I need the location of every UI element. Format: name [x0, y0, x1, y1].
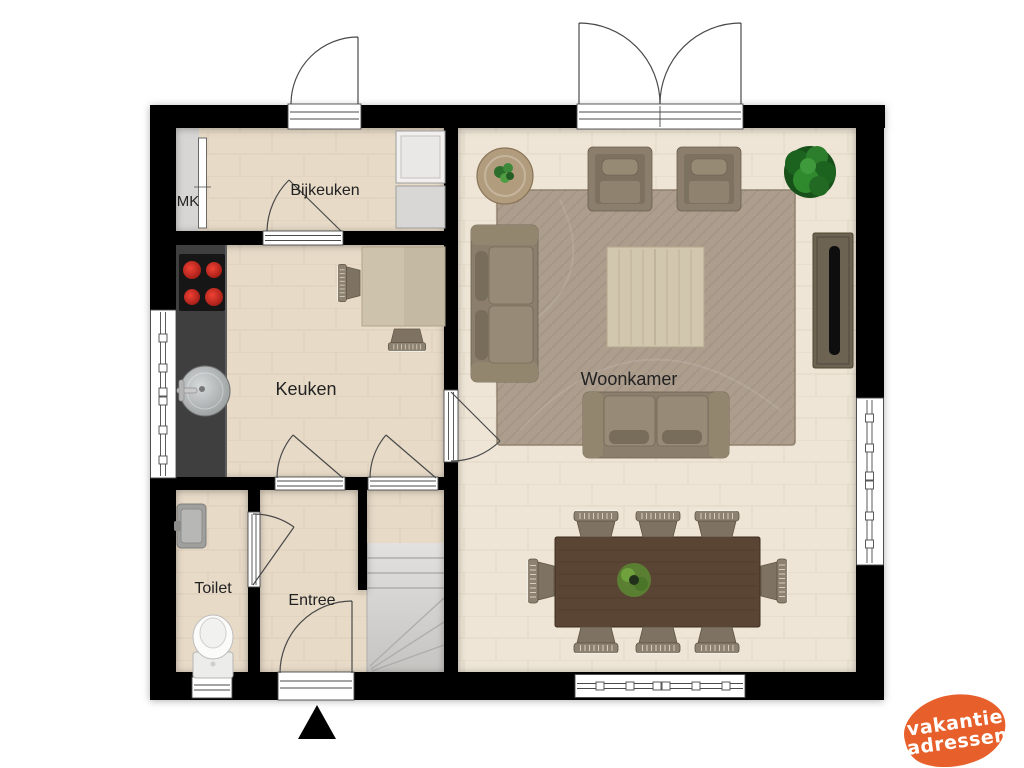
room-label-woonkamer: Woonkamer [581, 369, 678, 389]
door-woonkamer-double-exterior [577, 104, 743, 129]
room-label-toilet: Toilet [194, 580, 232, 597]
door-bijkeuken-exterior [288, 104, 361, 129]
window-woonkamer-right [857, 398, 884, 565]
dining-chair [574, 511, 618, 538]
armchair [677, 147, 741, 211]
window-toilet-bottom [192, 677, 232, 698]
floor-plan-canvas: MK Bijkeuken Keuken Woonkamer Toilet Ent… [0, 0, 1024, 768]
room-floor-mk [176, 128, 199, 231]
coffee-table [607, 247, 704, 347]
wall-entree-stairs [358, 483, 367, 590]
north-arrow-icon [298, 705, 336, 739]
wall-top [150, 105, 885, 128]
door-entree-keuken-left [275, 477, 345, 490]
side-table-round [477, 148, 533, 204]
window-dining-bottom [575, 675, 745, 698]
door-bijkeuken-keuken [263, 231, 343, 245]
room-label-mk: MK [177, 193, 200, 210]
armchair [588, 147, 652, 211]
room-label-entree: Entree [288, 592, 335, 609]
room-label-bijkeuken: Bijkeuken [290, 182, 359, 199]
washing-machine [396, 131, 445, 183]
dining-chair [761, 559, 788, 603]
kitchen-chair [338, 264, 361, 301]
toilet-fixture [193, 615, 233, 678]
window-keuken-left [151, 310, 177, 478]
kitchen-chair [388, 329, 425, 352]
room-label-keuken: Keuken [275, 379, 336, 399]
sofa-left [471, 225, 538, 382]
table-centerpiece-plant [617, 563, 651, 597]
stairs [367, 543, 444, 672]
door-entree-keuken-right [368, 477, 438, 490]
dining-chair [695, 627, 739, 654]
dining-chair [695, 511, 739, 538]
dining-chair [574, 627, 618, 654]
dining-chair [636, 511, 680, 538]
dining-chair [636, 627, 680, 654]
stove [179, 254, 225, 311]
door-front-entrance [278, 672, 354, 700]
tv-cabinet [813, 233, 853, 368]
toilet-sink [174, 504, 206, 548]
door-toilet-entree [248, 512, 260, 587]
logo-vakantieadressen: vakantie adressen [899, 688, 1011, 768]
dining-chair [528, 559, 555, 603]
door-keuken-woonkamer [444, 390, 458, 462]
sofa-bottom [583, 392, 729, 458]
kitchen-table [362, 247, 445, 326]
potted-plant-large [784, 146, 836, 198]
dining-table [555, 537, 760, 627]
wall-bottom [150, 672, 884, 700]
dryer [396, 186, 445, 228]
